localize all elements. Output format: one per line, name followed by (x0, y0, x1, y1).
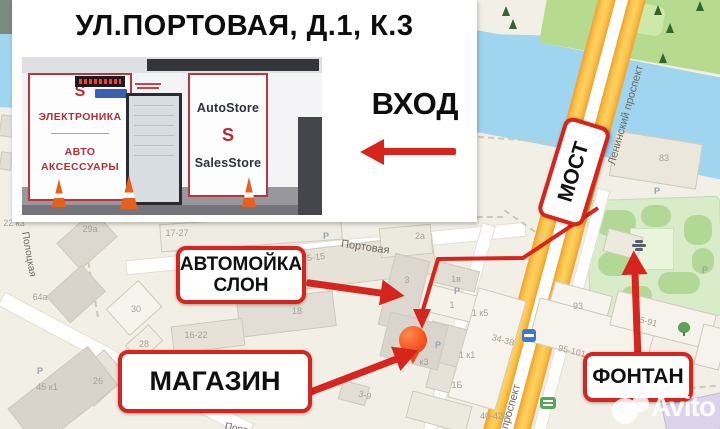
right-sign-line1: AutoStore (190, 101, 266, 115)
building-label: 16-22 (184, 330, 207, 340)
building-label: 1в (451, 274, 461, 284)
entrance-label: ВХОД (350, 86, 480, 122)
building-label: 1 к5 (472, 308, 488, 318)
conifer-tree-icon (696, 1, 704, 11)
carwash-callout: АВТОМОЙКА СЛОН (176, 246, 306, 304)
parking-icon: Р (454, 286, 460, 296)
wall-text (137, 87, 159, 89)
wall-text (135, 83, 161, 85)
carwash-callout-line2: СЛОН (213, 275, 268, 296)
building-label: 29а (82, 224, 97, 234)
street-label: Полоцкая (19, 231, 38, 278)
screenshot: ПортоваяПолоцкаяЛенинский проспектпроспе… (0, 0, 720, 429)
conifer-tree-icon (659, 53, 667, 63)
parking-icon: Р (435, 340, 441, 350)
bridge-callout-label: МОСТ (554, 139, 594, 205)
building-label: 28 (139, 339, 149, 349)
store-logo-icon: S (190, 125, 266, 146)
building-label: 40-42а (480, 411, 508, 421)
right-sign-board: AutoStore S SalesStore (188, 73, 268, 197)
building-label: 26 (93, 376, 103, 386)
conifer-tree-icon (654, 5, 662, 15)
carwash-callout-line1: АВТОМОЙКА (180, 254, 302, 275)
building-label: 83 (659, 153, 669, 163)
storefront-photo: S ЭЛЕКТРОНИКА АВТО АКСЕССУАРЫ AutoStore … (22, 57, 322, 215)
building-label: 45 к1 (36, 382, 57, 392)
parking-icon: Р (37, 366, 43, 376)
building (171, 318, 246, 355)
park-bush (658, 272, 700, 294)
sign-divider (51, 133, 109, 134)
entrance-arrow-icon (360, 139, 456, 165)
building-label: 1 (449, 300, 454, 310)
address-plate (95, 89, 127, 98)
left-sign-line3: АКСЕССУАРЫ (30, 161, 130, 173)
tree-icon (678, 322, 690, 333)
fountain-arrow-icon (621, 250, 651, 356)
building-label: 1 к1 (459, 350, 475, 360)
entrance-door (126, 93, 182, 205)
parking-icon: Р (654, 186, 660, 196)
avito-logo-icon (632, 395, 649, 412)
park-bush (684, 215, 712, 245)
address-title: УЛ.ПОРТОВАЯ, Д.1, К.3 (12, 10, 477, 43)
parking-icon: Р (702, 265, 708, 275)
building-label: 30 (131, 304, 141, 314)
info-banner: УЛ.ПОРТОВАЯ, Д.1, К.3 ВХОД S ЭЛЕКТРОНИКА… (12, 0, 477, 222)
pavement-shadow (22, 205, 322, 215)
park-bush (641, 205, 671, 227)
building-label: 18 (292, 306, 302, 316)
building-label: 93 (573, 301, 583, 311)
conifer-tree-icon (509, 19, 517, 29)
right-sign-line2: SalesStore (190, 156, 266, 170)
left-sign-line2: АВТО (30, 146, 130, 158)
parking-icon: Р (323, 231, 329, 241)
conifer-tree-icon (666, 23, 674, 33)
building-label: 1Б (452, 380, 463, 390)
shore-block (0, 0, 12, 34)
led-ticker (75, 76, 125, 87)
fountain-callout-label: ФОНТАН (592, 365, 683, 389)
shop-callout: МАГАЗИН (118, 350, 312, 413)
doorway-shadow (298, 117, 322, 215)
transit-stop-icon (540, 397, 556, 409)
building-label: 2а (415, 231, 425, 241)
shop-callout-label: МАГАЗИН (150, 366, 281, 396)
awning-dark-strip (147, 59, 319, 71)
building-label: 17-27 (165, 228, 188, 238)
avito-watermark-text: Avito (651, 391, 715, 423)
building-label: 64а (32, 292, 47, 302)
conifer-tree-icon (502, 6, 510, 16)
avito-watermark: Avito (612, 390, 715, 424)
left-sign-line1: ЭЛЕКТРОНИКА (30, 111, 130, 123)
bridge-sign-icon (522, 329, 536, 342)
